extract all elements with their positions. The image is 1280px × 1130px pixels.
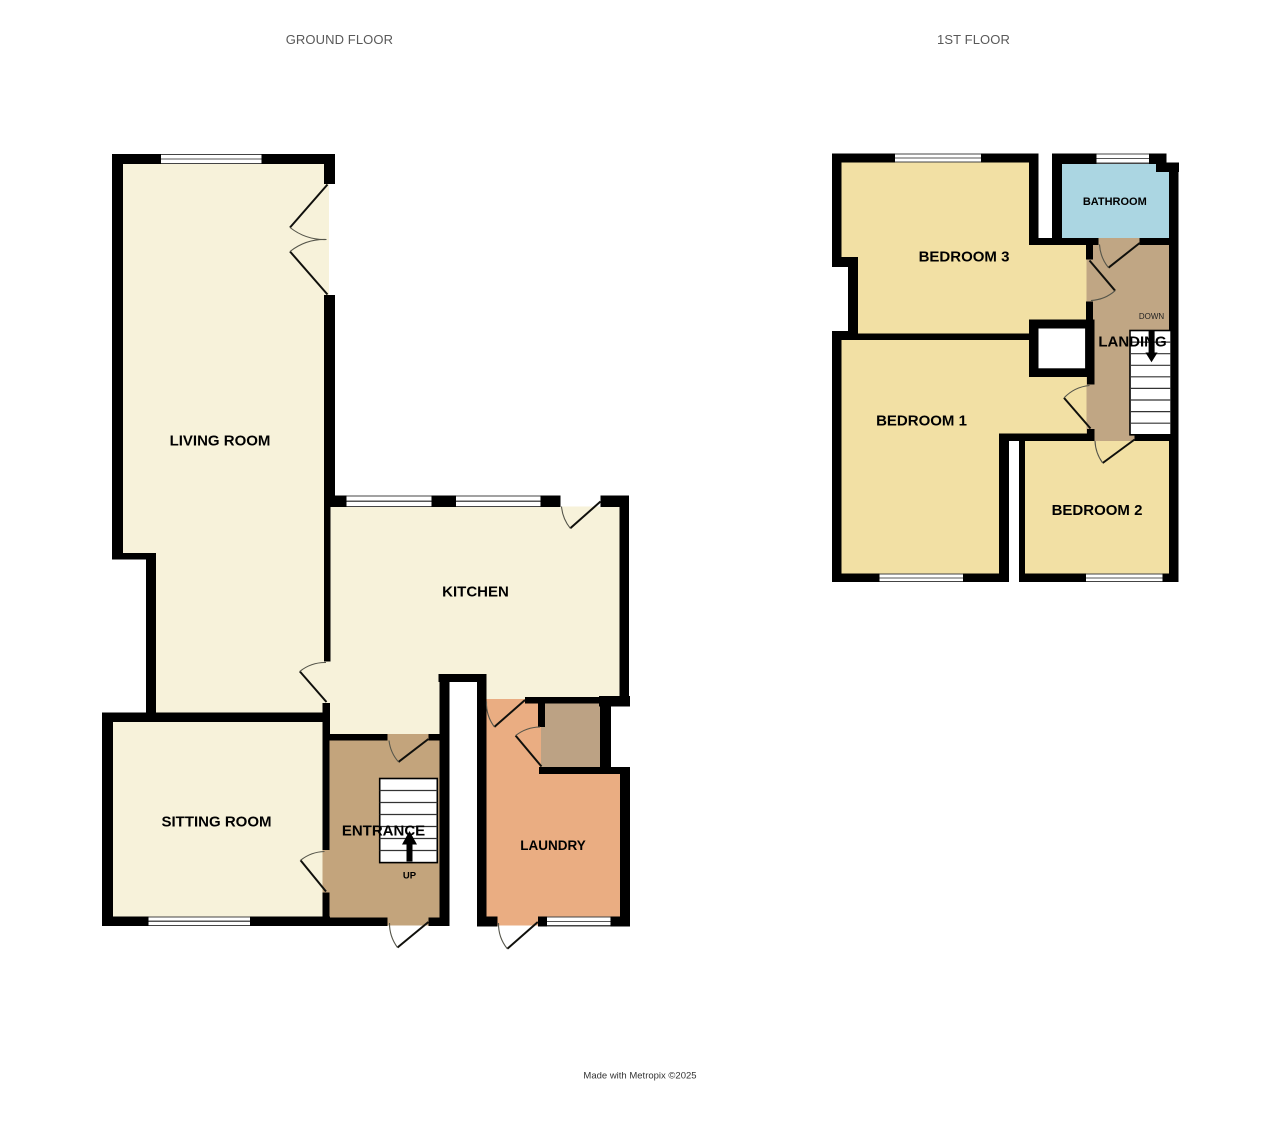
svg-text:KITCHEN: KITCHEN (442, 584, 509, 601)
svg-text:BEDROOM 2: BEDROOM 2 (1052, 502, 1143, 519)
svg-text:LANDING: LANDING (1098, 334, 1166, 351)
svg-text:Made with Metropix ©2025: Made with Metropix ©2025 (583, 1071, 696, 1082)
svg-text:BATHROOM: BATHROOM (1083, 196, 1147, 208)
svg-text:LAUNDRY: LAUNDRY (520, 838, 586, 853)
svg-text:UP: UP (403, 871, 417, 882)
svg-text:ENTRANCE: ENTRANCE (342, 823, 425, 840)
svg-text:1ST FLOOR: 1ST FLOOR (937, 32, 1010, 47)
svg-text:SITTING ROOM: SITTING ROOM (162, 814, 272, 831)
svg-text:BEDROOM 1: BEDROOM 1 (876, 413, 967, 430)
svg-text:LIVING ROOM: LIVING ROOM (170, 433, 271, 450)
svg-text:DOWN: DOWN (1139, 312, 1165, 321)
svg-text:BEDROOM 3: BEDROOM 3 (919, 249, 1010, 266)
svg-text:GROUND FLOOR: GROUND FLOOR (286, 32, 393, 47)
